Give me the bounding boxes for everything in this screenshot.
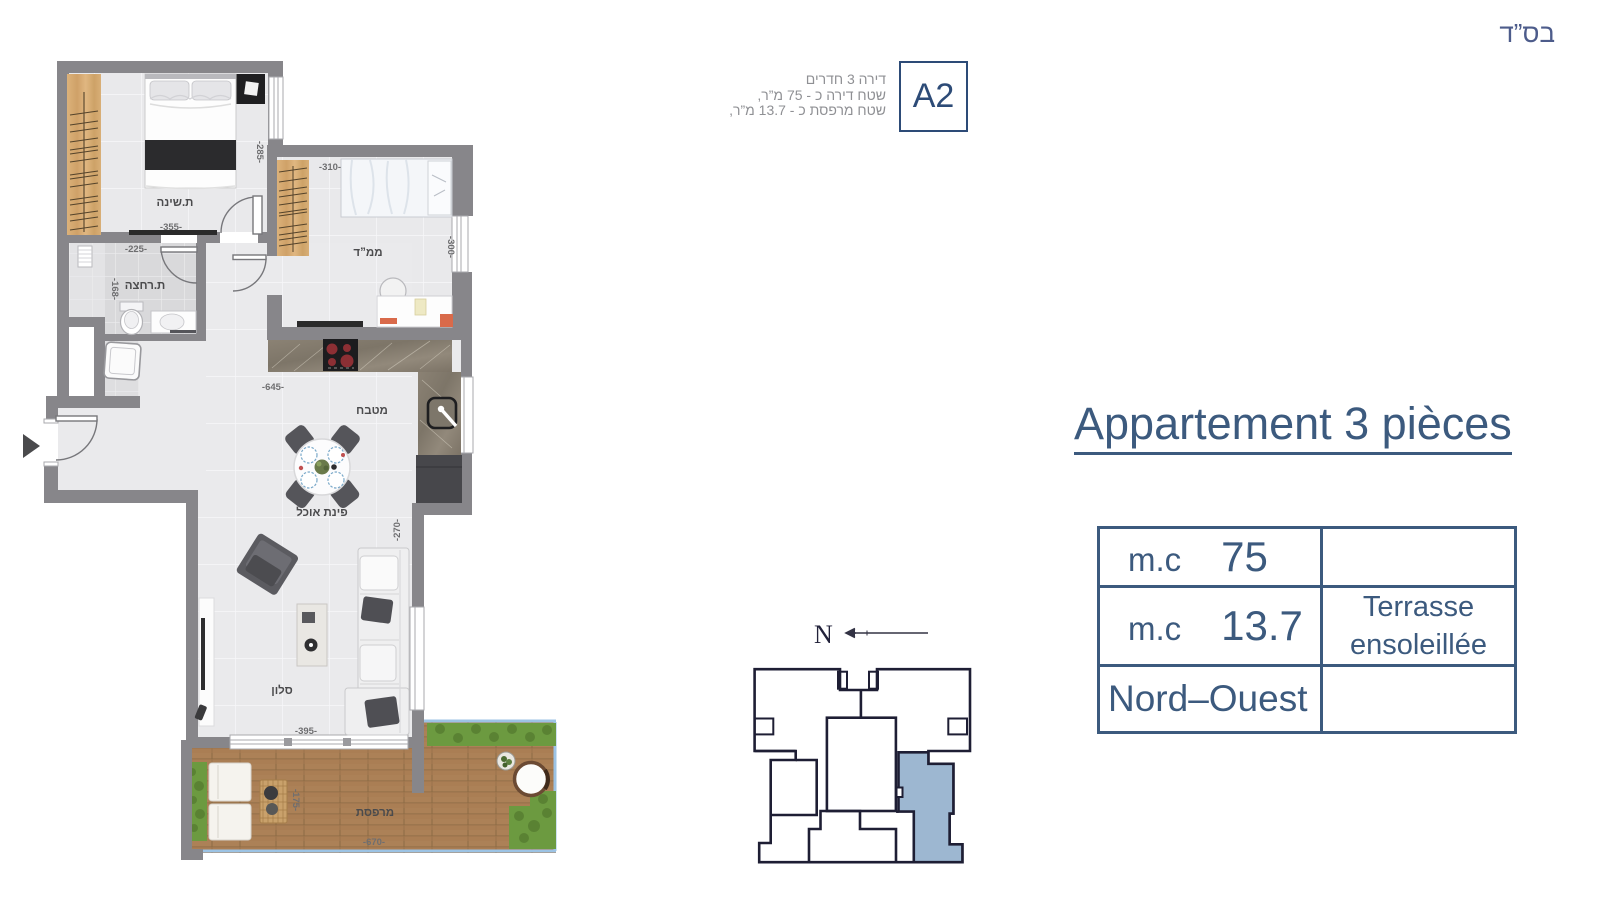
svg-text:-670-: -670- (363, 837, 385, 848)
svg-text:-310-: -310- (319, 162, 341, 173)
svg-text:-395-: -395- (295, 726, 317, 737)
svg-text:-300-: -300- (445, 236, 456, 258)
svg-text:-285-: -285- (254, 141, 265, 163)
svg-text:N: N (814, 620, 833, 649)
svg-text:ת.רחצה: ת.רחצה (125, 280, 166, 292)
svg-text:ממ”ד: ממ”ד (353, 247, 382, 259)
svg-text:-168-: -168- (109, 278, 120, 300)
svg-text:מטבח: מטבח (356, 405, 388, 417)
svg-text:-225-: -225- (125, 244, 147, 255)
svg-text:פינת אוכל: פינת אוכל (296, 506, 347, 519)
svg-text:ת.שינה: ת.שינה (157, 197, 194, 209)
svg-text:סלון: סלון (271, 684, 293, 697)
svg-text:-270-: -270- (392, 519, 403, 541)
svg-text:מרפסת: מרפסת (356, 807, 394, 819)
svg-text:-175-: -175- (290, 789, 301, 811)
svg-text:-355-: -355- (160, 222, 182, 233)
svg-text:-645-: -645- (262, 382, 284, 393)
